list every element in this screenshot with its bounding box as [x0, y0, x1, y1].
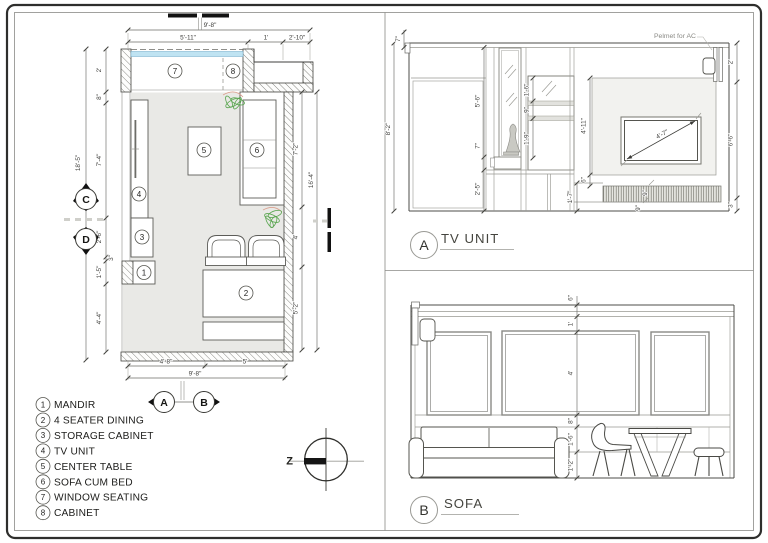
callout-storage: 3	[135, 230, 149, 244]
dimension-label: 4'-4"	[96, 312, 103, 325]
detail-marker-a: A	[419, 237, 429, 253]
tv-unit-title: A TV UNIT	[411, 231, 515, 259]
svg-text:STORAGE CABINET: STORAGE CABINET	[54, 431, 154, 442]
pelmet-note: Pelmet for AC	[654, 33, 696, 40]
dimension-label: 1'-6"	[568, 433, 575, 446]
dimension-label: 2'-5"	[475, 183, 482, 196]
section-cut-right	[313, 208, 331, 252]
svg-text:3: 3	[140, 233, 145, 242]
dimension-label: 7"	[475, 143, 482, 149]
sheet-svg: 1 2 3 4 5 6 7 8 9'-8" 5'-11" 1' 2'-10" 1	[0, 0, 768, 543]
dimension-label: 4'	[568, 371, 575, 376]
callout-dining: 2	[239, 286, 253, 300]
svg-text:4: 4	[41, 447, 46, 456]
svg-text:4: 4	[137, 190, 142, 199]
callout-window-seating: 7	[168, 64, 182, 78]
dimension-label: 5'-6"	[475, 95, 482, 108]
svg-text:7: 7	[173, 67, 178, 76]
svg-text:3: 3	[41, 431, 46, 440]
dining-chair	[247, 236, 286, 266]
dimension-label: 1'-2"	[568, 459, 575, 472]
legend-item: 5CENTER TABLE	[36, 459, 132, 473]
svg-text:1: 1	[41, 400, 46, 409]
ac-unit	[703, 58, 715, 74]
section-marker-c: C	[73, 183, 99, 211]
svg-text:8: 8	[231, 67, 236, 76]
legend-item: 24 SEATER DINING	[36, 413, 144, 427]
svg-text:5: 5	[41, 462, 46, 471]
accent-chair	[592, 423, 635, 476]
svg-text:C: C	[82, 194, 90, 206]
tv-unit-elevation: Pelmet for AC 4'-7" 8'-2" 7" 5'-6" 7" 2'…	[385, 30, 739, 259]
dimension-label: 16'-4"	[308, 172, 315, 188]
svg-text:4 SEATER DINING: 4 SEATER DINING	[54, 416, 144, 427]
svg-text:CABINET: CABINET	[54, 508, 100, 519]
dimension-label: 9'-8"	[204, 22, 217, 29]
svg-text:D: D	[82, 234, 90, 246]
floor-plan: 1 2 3 4 5 6 7 8 9'-8" 5'-11" 1' 2'-10" 1	[64, 14, 331, 414]
north-arrow: Z	[286, 428, 364, 491]
tv: 4'-7"	[621, 113, 701, 166]
dining-bench-plan	[203, 322, 284, 340]
dimension-label: 6"	[568, 295, 575, 301]
dining-chair	[206, 236, 248, 266]
dimension-label: 18'-5"	[75, 155, 82, 171]
svg-text:6: 6	[255, 146, 260, 155]
svg-text:WINDOW SEATING: WINDOW SEATING	[54, 493, 148, 504]
detail-title: TV UNIT	[441, 231, 499, 246]
ac-pelmet	[697, 37, 723, 82]
svg-text:5: 5	[202, 146, 207, 155]
dimension-label: 3"	[728, 202, 735, 208]
callout-tv-unit: 4	[132, 187, 146, 201]
dimension-label: 9'-8"	[189, 371, 202, 378]
svg-text:A: A	[160, 397, 168, 409]
dimension-label: 1'-7"	[567, 191, 574, 204]
section-marker-b: B	[194, 391, 221, 413]
detail-marker-b: B	[419, 502, 428, 518]
plan-dimensions-bottom: 4'-8" 5' 9'-8"	[126, 359, 288, 381]
sofa	[409, 427, 569, 478]
callout-sofa-cum-bed: 6	[250, 143, 264, 157]
dimension-label: 7'-2"	[293, 143, 300, 156]
dimension-label: 5'-2"	[293, 302, 300, 315]
svg-text:CENTER TABLE: CENTER TABLE	[54, 462, 132, 473]
sofa-title: B SOFA	[411, 496, 520, 524]
callout-center-table: 5	[197, 143, 211, 157]
dimension-label: 2'	[728, 60, 735, 65]
dimension-label: 4'-8"	[160, 359, 173, 366]
north-bar	[304, 458, 326, 464]
legend-item: 3STORAGE CABINET	[36, 428, 154, 442]
svg-text:TV UNIT: TV UNIT	[54, 446, 95, 457]
dimension-label: 1'-6"	[524, 84, 531, 97]
svg-text:6: 6	[41, 478, 46, 487]
dimension-label: 4'	[293, 235, 300, 240]
legend-item: 4TV UNIT	[36, 444, 95, 458]
legend-item: 1MANDIR	[36, 398, 95, 412]
dimension-label: 4'-11"	[581, 118, 588, 134]
svg-text:SOFA CUM BED: SOFA CUM BED	[54, 477, 133, 488]
dimension-label: 9"	[524, 107, 531, 113]
callout-mandir: 1	[137, 266, 151, 280]
svg-text:8: 8	[41, 509, 46, 518]
dimension-label: 8"	[96, 94, 103, 100]
dimension-label: 1'	[264, 35, 269, 42]
dimension-label: 6"	[581, 177, 588, 183]
legend: 1MANDIR 24 SEATER DINING 3STORAGE CABINE…	[36, 398, 154, 520]
window	[131, 52, 243, 57]
dimension-label: 2'-10"	[289, 35, 305, 42]
dimension-label: 7'-4"	[96, 154, 103, 167]
dimension-label: 3"	[108, 255, 115, 261]
ac-left	[412, 302, 436, 345]
fluted-drawer	[603, 186, 721, 202]
section-marker-a: A	[148, 381, 194, 413]
stool	[694, 448, 724, 476]
drawing-sheet: 1 2 3 4 5 6 7 8 9'-8" 5'-11" 1' 2'-10" 1	[0, 0, 768, 543]
dimension-label: 1'	[568, 322, 575, 327]
detail-title: SOFA	[444, 496, 483, 511]
dimension-label: 6'-6"	[728, 134, 735, 147]
svg-text:MANDIR: MANDIR	[54, 400, 95, 411]
svg-text:B: B	[200, 397, 208, 409]
sofa-arm-left	[409, 438, 424, 478]
left-panel	[413, 81, 483, 208]
svg-text:7: 7	[41, 493, 46, 502]
legend-item: 6SOFA CUM BED	[36, 475, 133, 489]
callout-cabinet: 8	[226, 64, 240, 78]
legend-item: 7WINDOW SEATING	[36, 490, 148, 504]
mirror-niche	[491, 48, 522, 169]
dimension-label: 5'-11"	[180, 35, 196, 42]
sofa-elevation: 6" 1' 4' 8" 1'-6" 1'-2" B SOFA	[409, 295, 734, 523]
section-cut-top	[168, 14, 229, 31]
dimension-label: 7"	[395, 36, 402, 42]
dimension-label: 1'-5"	[96, 266, 103, 279]
svg-text:2: 2	[244, 289, 249, 298]
svg-text:2: 2	[41, 416, 46, 425]
svg-text:1: 1	[142, 268, 147, 277]
dimension-label: 5'	[243, 359, 248, 366]
mandir-hatch	[122, 261, 133, 284]
dimension-label: 9"	[642, 190, 649, 196]
dimension-label: 2'	[96, 68, 103, 73]
north-letter: Z	[286, 456, 293, 468]
dimension-label: 9"	[635, 205, 642, 211]
dimension-label: 1'-9"	[524, 132, 531, 145]
dimension-label: 8'-2"	[385, 123, 392, 136]
legend-item: 8CABINET	[36, 506, 100, 520]
dimension-label: 8"	[568, 418, 575, 424]
